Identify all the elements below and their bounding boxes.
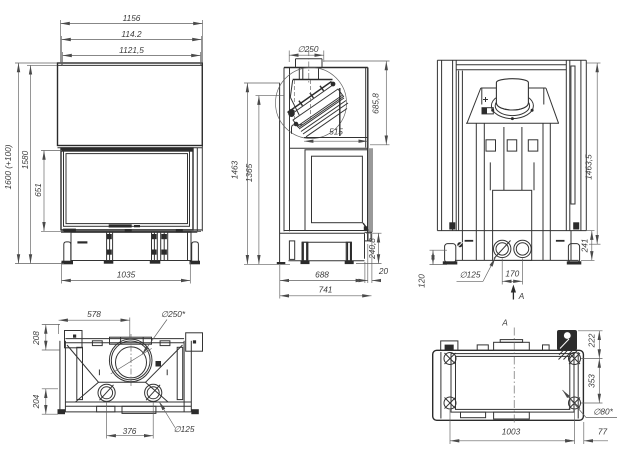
svg-text:741: 741	[319, 285, 333, 295]
svg-text:∅125: ∅125	[173, 424, 194, 434]
svg-text:222: 222	[587, 333, 597, 348]
svg-text:515: 515	[329, 127, 343, 137]
svg-text:A: A	[518, 291, 525, 301]
svg-text:∅125: ∅125	[459, 270, 480, 280]
svg-text:∅250: ∅250	[297, 44, 318, 54]
svg-text:A: A	[501, 318, 508, 328]
svg-text:353: 353	[587, 374, 597, 388]
svg-text:208: 208	[31, 331, 41, 346]
svg-text:114.2: 114.2	[121, 29, 142, 39]
svg-text:∅250*: ∅250*	[161, 309, 186, 319]
svg-text:1580: 1580	[20, 150, 30, 169]
svg-text:77: 77	[598, 427, 608, 437]
svg-text:1003: 1003	[502, 427, 521, 437]
svg-text:651: 651	[33, 183, 43, 197]
svg-text:120: 120	[417, 274, 427, 288]
svg-text:1121,5: 1121,5	[119, 45, 144, 55]
svg-text:170: 170	[505, 268, 519, 278]
svg-text:204: 204	[31, 394, 41, 409]
svg-text:∅80*: ∅80*	[593, 407, 613, 417]
svg-text:1035: 1035	[117, 270, 136, 280]
svg-text:241: 241	[580, 239, 590, 254]
svg-text:578: 578	[87, 309, 101, 319]
svg-text:1463,5: 1463,5	[584, 154, 594, 180]
svg-text:688: 688	[315, 270, 329, 280]
svg-text:1463: 1463	[230, 160, 240, 179]
svg-text:1365: 1365	[244, 163, 254, 182]
svg-text:376: 376	[123, 426, 137, 436]
svg-text:1156: 1156	[123, 13, 141, 23]
svg-text:685,8: 685,8	[370, 93, 380, 114]
svg-text:20: 20	[378, 266, 389, 276]
svg-text:1600 (+100): 1600 (+100)	[3, 144, 13, 189]
